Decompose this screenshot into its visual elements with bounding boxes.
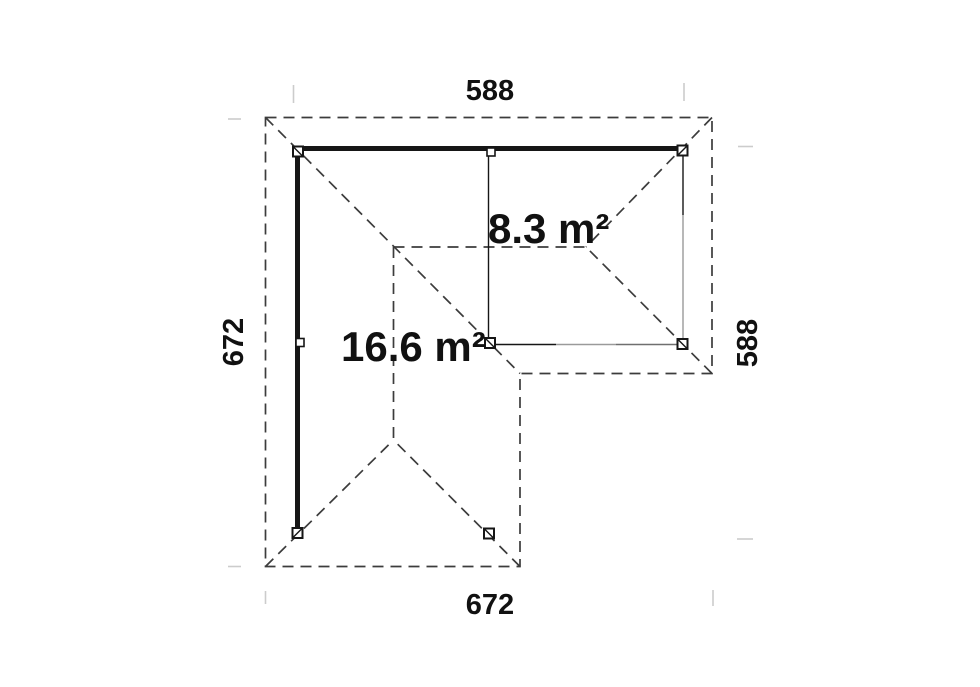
post-bottom-middle	[484, 529, 494, 539]
post-bottom-left	[293, 528, 303, 538]
post-inner-corner	[485, 338, 495, 348]
floor-plan-canvas: 588 672 672 588 8.3 m² 16.6 m²	[0, 0, 980, 687]
dimension-right: 588	[732, 319, 764, 367]
post-right-bottom	[678, 339, 688, 349]
roof-hip-bottom-right	[586, 247, 712, 374]
roof-hip-bottom-middle	[394, 440, 521, 567]
post-top-middle	[487, 148, 495, 156]
dimension-bottom: 672	[466, 589, 514, 621]
dimension-left: 672	[218, 318, 250, 366]
post-left-middle	[296, 339, 304, 347]
post-top-right	[678, 146, 688, 156]
area-label-annex: 8.3 m²	[488, 205, 609, 252]
dimension-top: 588	[466, 75, 514, 107]
floor-plan-drawing: 588 672 672 588 8.3 m² 16.6 m²	[0, 0, 980, 687]
post-top-left	[293, 147, 303, 157]
roof-hip-bottom-left	[266, 440, 394, 567]
area-label-main: 16.6 m²	[341, 323, 486, 370]
